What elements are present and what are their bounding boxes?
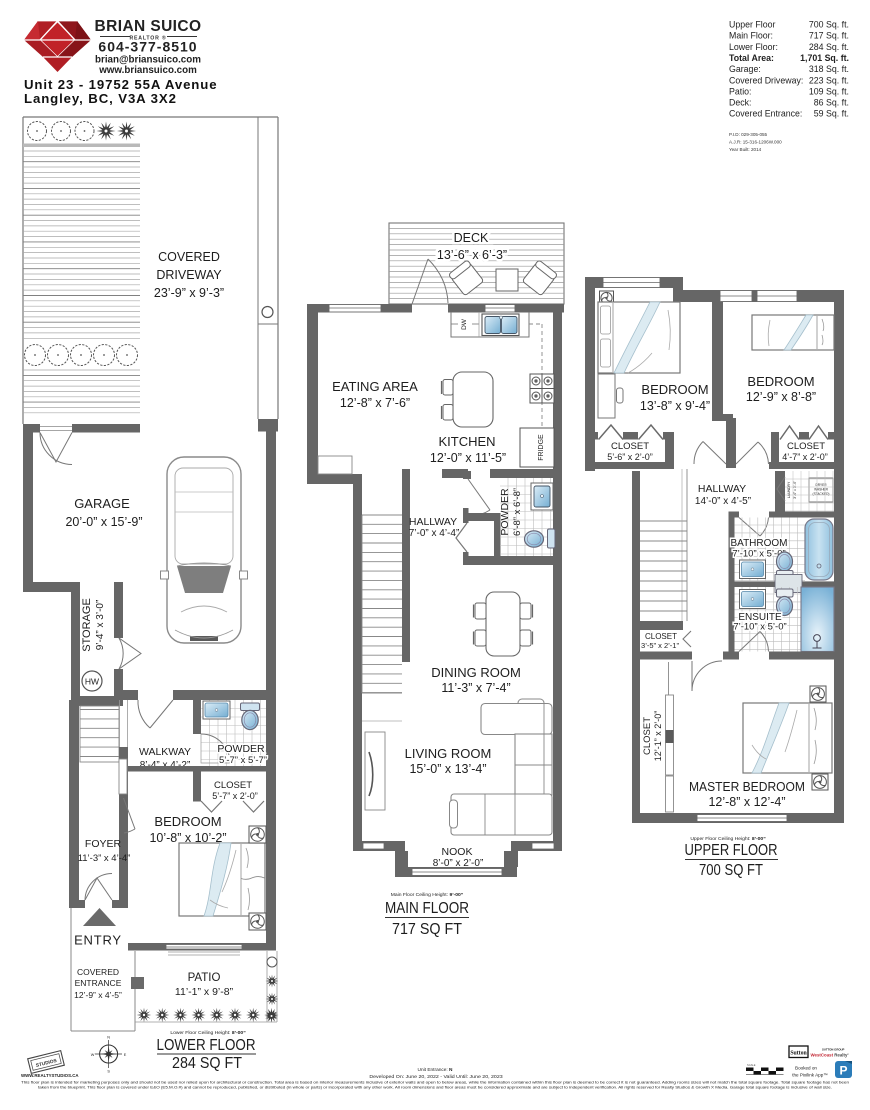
svg-text:15’-0” x 13’-4”: 15’-0” x 13’-4” [409,762,486,776]
svg-text:11’-1” x 9’-8”: 11’-1” x 9’-8” [175,986,234,998]
svg-text:FOYER: FOYER [85,838,122,850]
svg-text:www.briansuico.com: www.briansuico.com [98,65,197,76]
svg-text:Unit 23 - 19752 55A Avenue: Unit 23 - 19752 55A Avenue [24,77,217,92]
svg-text:13’-6” x 6’-3”: 13’-6” x 6’-3” [437,248,507,262]
svg-text:CLOSET: CLOSET [787,441,825,452]
svg-text:FRIDGE: FRIDGE [538,434,545,461]
svg-text:W: W [91,1053,95,1057]
svg-text:HW: HW [85,677,99,687]
svg-text:CLOSET: CLOSET [645,632,677,641]
svg-text:DW: DW [461,318,468,330]
svg-text:taken from the blueprint. This: taken from the blueprint. This floor pla… [38,1085,832,1090]
svg-text:N: N [107,1036,110,1040]
svg-text:12’-8” x 7’-6”: 12’-8” x 7’-6” [340,396,410,410]
svg-text:POWDER: POWDER [217,743,265,755]
svg-text:DECK: DECK [454,231,489,245]
svg-text:5’-7” x 5’-7”: 5’-7” x 5’-7” [219,755,267,766]
svg-text:GARAGE: GARAGE [74,496,130,511]
svg-text:ENTRANCE: ENTRANCE [75,978,122,988]
svg-text:6’-8” x 6’-8”: 6’-8” x 6’-8” [512,488,523,536]
svg-text:12’-8” x 12’-4”: 12’-8” x 12’-4” [708,795,785,809]
svg-text:Main Floor:: Main Floor: [729,31,773,41]
svg-text:86 Sq. ft.: 86 Sq. ft. [814,98,849,108]
svg-text:Upper Floor: Upper Floor [729,20,776,30]
svg-text:12’-9” x 4’-5”: 12’-9” x 4’-5” [74,990,122,1000]
svg-text:COVERED: COVERED [77,967,119,977]
svg-text:SUTTON GROUP: SUTTON GROUP [822,1048,844,1052]
svg-text:NOOK: NOOK [442,846,473,858]
svg-text:LAUNDRY: LAUNDRY [787,481,791,498]
svg-text:ENTRY: ENTRY [74,933,122,948]
svg-text:EATING AREA: EATING AREA [332,379,418,394]
svg-text:3’-5” x 2’-1”: 3’-5” x 2’-1” [641,641,679,650]
svg-text:WALKWAY: WALKWAY [139,746,191,758]
svg-text:This floor plan is intended fo: This floor plan is intended for marketin… [21,1080,849,1085]
svg-text:HALLWAY: HALLWAY [409,516,457,528]
svg-text:59 Sq. ft.: 59 Sq. ft. [814,109,849,119]
svg-text:717 Sq. ft.: 717 Sq. ft. [809,31,849,41]
svg-text:Covered Entrance:: Covered Entrance: [729,109,802,119]
svg-text:4’-7” x 2’-0”: 4’-7” x 2’-0” [782,452,828,462]
svg-text:PATIO: PATIO [188,972,221,984]
svg-text:12’-9” x 8’-8”: 12’-9” x 8’-8” [746,390,816,404]
svg-text:POWDER: POWDER [499,488,511,536]
svg-text:CLOSET: CLOSET [214,780,252,791]
svg-text:3’-4” x 3’-4”: 3’-4” x 3’-4” [793,480,797,498]
svg-text:BEDROOM: BEDROOM [641,382,708,397]
svg-text:12’-0” x 11’-5”: 12’-0” x 11’-5” [430,451,506,465]
svg-text:A.J.R: 15-316-1206W.000: A.J.R: 15-316-1206W.000 [729,140,782,145]
svg-text:MASTER BEDROOM: MASTER BEDROOM [689,779,805,794]
svg-text:COVERED: COVERED [158,250,220,264]
svg-text:7’-0” x 4’-4”: 7’-0” x 4’-4” [409,528,460,539]
svg-text:700 Sq. ft.: 700 Sq. ft. [809,20,849,30]
svg-text:Unit Entrance: N: Unit Entrance: N [418,1067,454,1073]
svg-text:Langley, BC, V3A 3X2: Langley, BC, V3A 3X2 [24,91,177,106]
svg-text:223 Sq. ft.: 223 Sq. ft. [809,75,849,85]
svg-text:WWW.REALTYSTUDIOS.CA: WWW.REALTYSTUDIOS.CA [21,1073,79,1078]
svg-text:Patio:: Patio: [729,86,752,96]
svg-text:P: P [839,1064,847,1078]
svg-text:Covered Driveway:: Covered Driveway: [729,75,803,85]
svg-text:284 Sq. ft.: 284 Sq. ft. [809,42,849,52]
svg-text:20’-0” x 15’-9”: 20’-0” x 15’-9” [65,515,142,529]
svg-text:STORAGE: STORAGE [81,598,93,652]
svg-text:BEDROOM: BEDROOM [747,374,814,389]
svg-text:DINING ROOM: DINING ROOM [431,665,521,680]
svg-text:1,701 Sq. ft.: 1,701 Sq. ft. [800,53,849,63]
svg-text:HALLWAY: HALLWAY [698,483,746,495]
svg-text:LIVING ROOM: LIVING ROOM [405,746,492,761]
svg-text:LOWER FLOOR: LOWER FLOOR [157,1037,256,1054]
svg-text:11’-3” x 4’-4”: 11’-3” x 4’-4” [78,853,131,864]
svg-text:brian@briansuico.com: brian@briansuico.com [95,55,201,66]
svg-text:8’-0” x 2’-0”: 8’-0” x 2’-0” [433,858,484,869]
svg-text:Year Built: 2014: Year Built: 2014 [729,147,762,152]
svg-text:UPPER FLOOR: UPPER FLOOR [685,842,778,859]
svg-text:604-377-8510: 604-377-8510 [98,39,197,55]
svg-text:BEDROOM: BEDROOM [154,814,221,829]
svg-text:11’-3” x 7’-4”: 11’-3” x 7’-4” [441,681,510,695]
svg-text:CLOSET: CLOSET [642,717,653,755]
svg-text:(STACKED): (STACKED) [813,492,830,496]
svg-text:Garage:: Garage: [729,64,761,74]
svg-text:Sutton: Sutton [790,1051,807,1057]
svg-text:318 Sq. ft.: 318 Sq. ft. [809,64,849,74]
svg-text:717 SQ FT: 717 SQ FT [392,921,462,938]
svg-text:BRIAN SUICO: BRIAN SUICO [95,18,202,35]
svg-text:KITCHEN: KITCHEN [438,434,495,449]
svg-text:12’-1” x 2’-0”: 12’-1” x 2’-0” [653,711,663,762]
svg-text:BATHROOM: BATHROOM [730,538,787,549]
svg-text:Total Area:: Total Area: [729,53,774,63]
svg-text:13’-8” x 9’-4”: 13’-8” x 9’-4” [640,399,710,413]
svg-text:7’-10” x 5’-0”: 7’-10” x 5’-0” [733,622,786,633]
svg-text:14’-0” x 4’-5”: 14’-0” x 4’-5” [695,496,751,507]
svg-text:700 SQ FT: 700 SQ FT [699,862,763,879]
svg-text:WASHER: WASHER [814,488,829,492]
svg-text:5’-6” x 2’-0”: 5’-6” x 2’-0” [607,452,653,462]
svg-text:284 SQ FT: 284 SQ FT [172,1055,242,1072]
svg-text:Deck:: Deck: [729,98,752,108]
svg-text:MAIN FLOOR: MAIN FLOOR [385,900,469,917]
svg-text:5’-7” x 2’-0”: 5’-7” x 2’-0” [212,791,258,801]
svg-text:the Pixilink App™: the Pixilink App™ [792,1073,828,1078]
svg-text:109 Sq. ft.: 109 Sq. ft. [809,86,849,96]
svg-text:CLOSET: CLOSET [611,441,649,452]
svg-text:P.I.D: 029-305-055: P.I.D: 029-305-055 [729,132,768,137]
svg-text:DRIVEWAY: DRIVEWAY [156,268,222,282]
svg-text:Developed On: June 20, 2022 -: Developed On: June 20, 2022 - Valid Unti… [369,1074,503,1080]
svg-text:Lower Floor:: Lower Floor: [729,42,778,52]
svg-text:Main Floor Ceiling Height: 9’-: Main Floor Ceiling Height: 9’-00” [391,892,464,898]
svg-text:Booked on: Booked on [795,1066,817,1071]
svg-text:WestCoast Realty’: WestCoast Realty’ [811,1053,849,1058]
svg-text:9’-4” x 3’-0”: 9’-4” x 3’-0” [95,600,106,651]
svg-text:Lower Floor Ceiling Height: 8’: Lower Floor Ceiling Height: 8’-00” [170,1030,246,1036]
svg-text:23’-9” x 9’-3”: 23’-9” x 9’-3” [154,286,224,300]
